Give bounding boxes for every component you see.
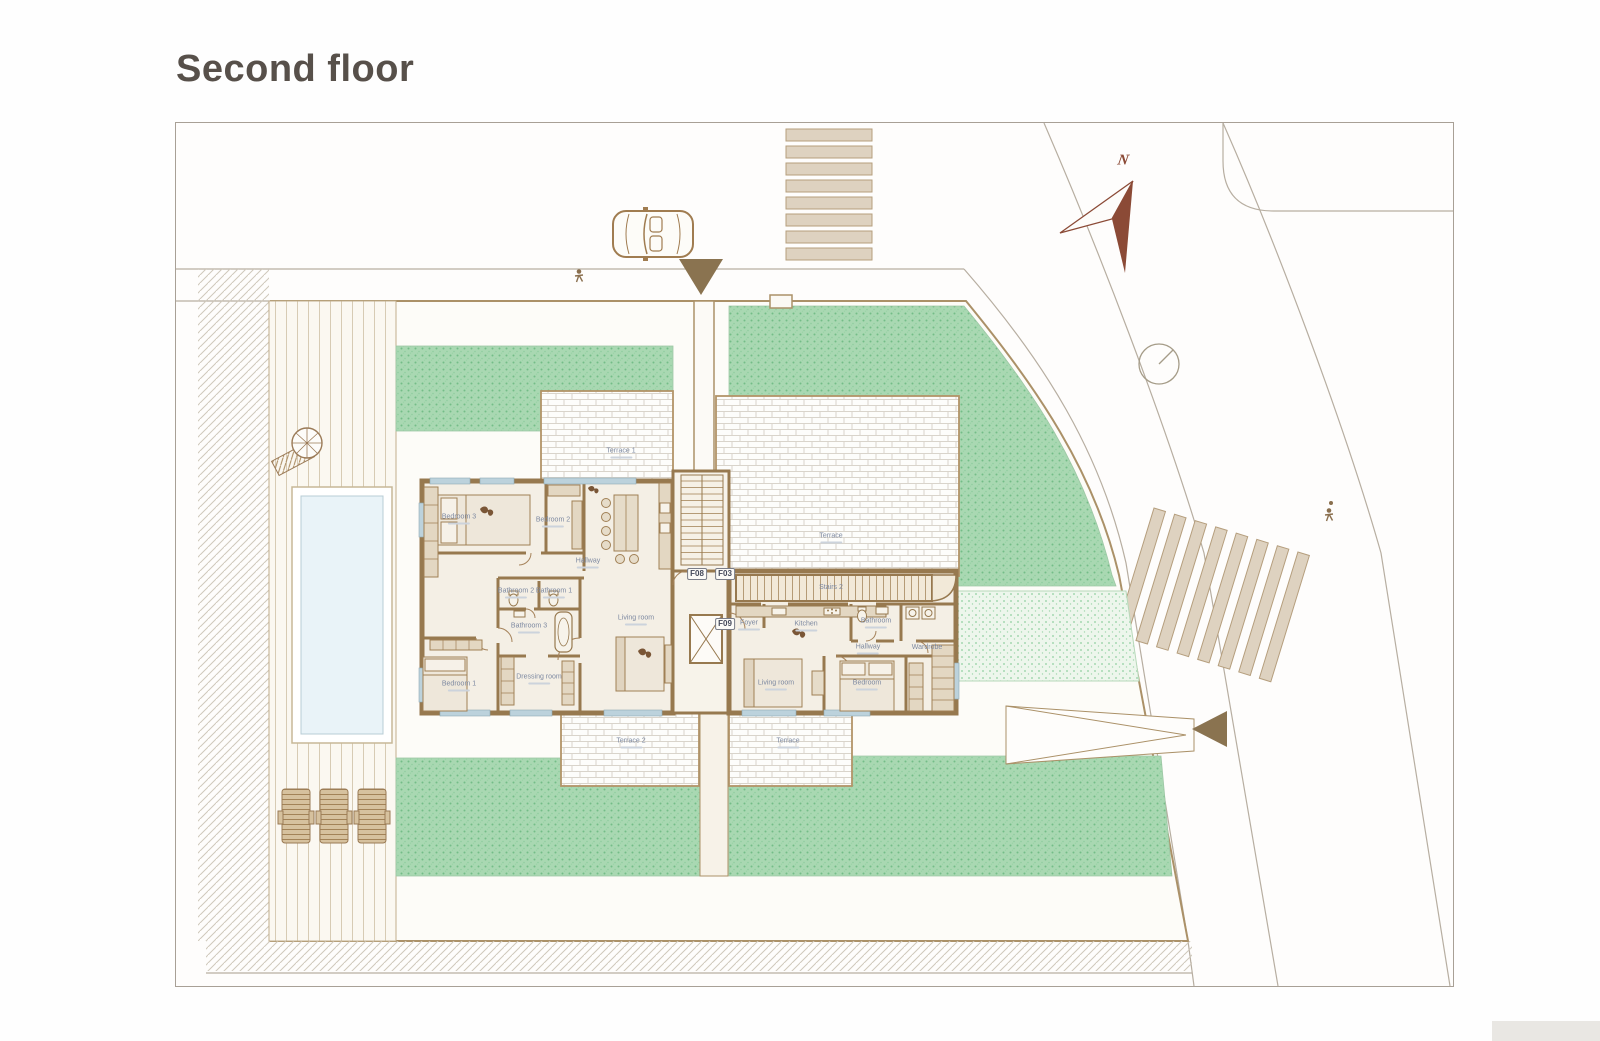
car-icon — [613, 207, 693, 261]
unit-tag-f08: F08 — [687, 568, 707, 580]
site-plan-sheet: Bedroom 3 Bedroom 2 Hallway Bathroom 2 B… — [175, 122, 1454, 987]
terrace-top-left — [541, 391, 673, 481]
pool — [292, 487, 392, 743]
site-plan-drawing — [176, 123, 1453, 986]
terrace-bottom-left — [561, 713, 699, 786]
pedestrian-icon-top — [575, 269, 583, 282]
unit-tag-f03: F03 — [715, 568, 735, 580]
terrace-bottom-right — [729, 713, 852, 786]
gate-pillar — [770, 295, 792, 308]
crosswalk-right — [1115, 508, 1309, 682]
hatch-strip-bottom — [206, 941, 1192, 971]
terrace-right-large — [716, 396, 959, 576]
entrance-arrow-right — [1192, 711, 1227, 747]
north-arrow-icon — [1060, 181, 1133, 273]
gravel-patch — [953, 591, 1139, 681]
driveway-ramp — [1006, 706, 1194, 764]
walkway-top — [694, 301, 714, 481]
stair-core — [673, 471, 729, 713]
tree-icon — [1139, 344, 1179, 384]
crosswalk-top — [786, 129, 872, 260]
entrance-arrow-top — [679, 259, 723, 295]
pedestrian-icon-right — [1325, 501, 1333, 521]
page-title: Second floor — [176, 48, 414, 91]
unit-tag-f09: F09 — [715, 618, 735, 630]
corner-watermark-block — [1492, 1021, 1600, 1041]
walkway-bottom — [700, 713, 728, 876]
hatch-strip-left — [198, 269, 269, 941]
sun-loungers — [278, 789, 390, 843]
page: Second floor — [0, 0, 1600, 1041]
